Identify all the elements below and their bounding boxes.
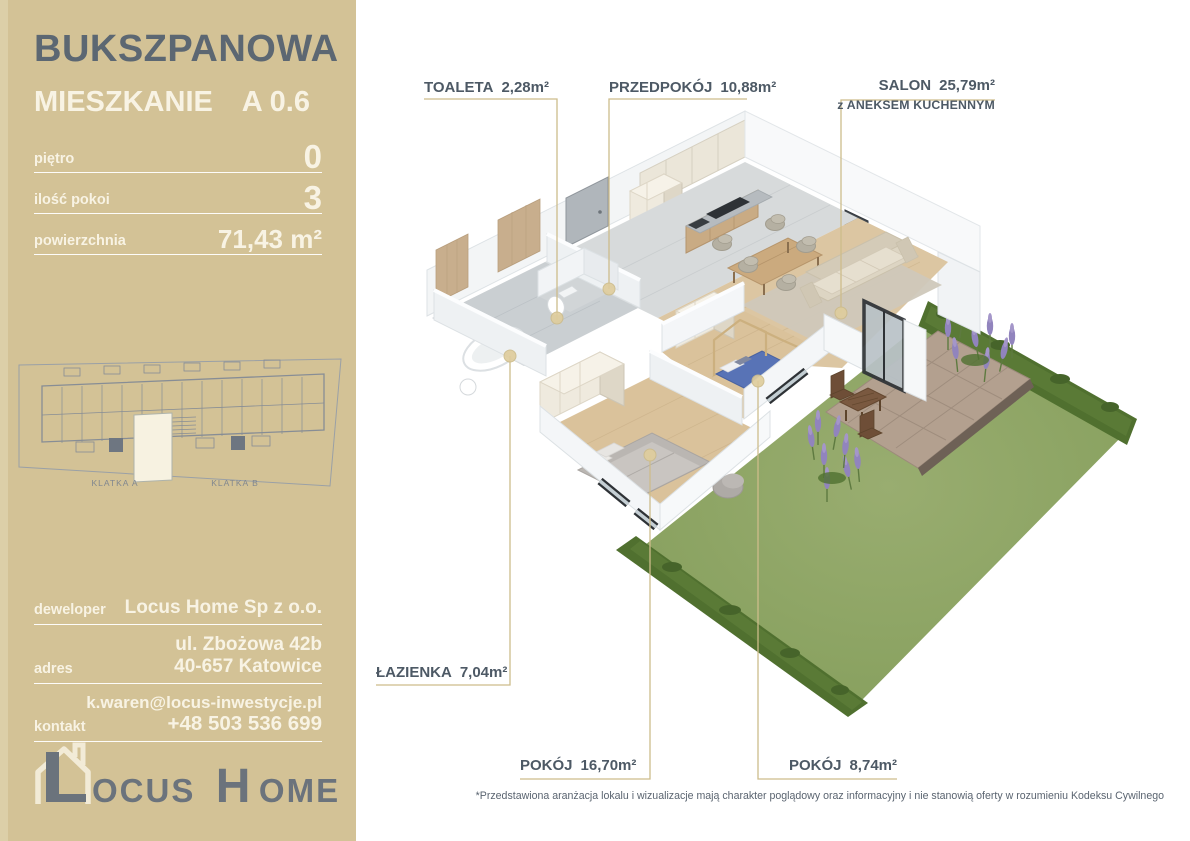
address-label: adres bbox=[34, 661, 73, 677]
address-street: ul. Zbożowa 42b bbox=[34, 634, 322, 656]
room-name: ŁAZIENKA bbox=[376, 664, 452, 681]
svg-text:OCUS H OME: OCUS H OME bbox=[92, 760, 340, 813]
building-site-map: KLATKA A KLATKA B bbox=[6, 338, 352, 490]
label-przedpokoj: PRZEDPOKÓJ10,88m² bbox=[609, 79, 776, 96]
stat-row-floor: piętro 0 bbox=[34, 132, 322, 173]
room-area: 16,70m² bbox=[581, 757, 637, 774]
unit-stats: piętro 0 ilość pokoi 3 powierzchnia 71,4… bbox=[34, 132, 322, 255]
floorplan-render bbox=[356, 0, 1190, 841]
contact-row: kontakt k.waren@locus-inwestycje.pl +48 … bbox=[34, 693, 322, 742]
logo-text-h: H bbox=[216, 760, 253, 813]
rooms-value: 3 bbox=[304, 181, 322, 214]
developer-label: deweloper bbox=[34, 602, 106, 618]
rooms-label: ilość pokoi bbox=[34, 192, 110, 208]
contact-block: deweloper Locus Home Sp z o.o. adres ul.… bbox=[34, 597, 322, 751]
label-toaleta: TOALETA2,28m² bbox=[424, 79, 549, 96]
room-area: 10,88m² bbox=[720, 79, 776, 96]
legal-disclaimer: *Przedstawiona aranżacja lokalu i wizual… bbox=[476, 790, 1164, 802]
stat-row-area: powierzchnia 71,43 m² bbox=[34, 214, 322, 255]
core-a bbox=[109, 438, 123, 452]
unit-title: MIESZKANIE A 0.6 bbox=[34, 86, 310, 119]
door-handle bbox=[598, 210, 602, 214]
room-area: 2,28m² bbox=[501, 79, 549, 96]
washbasin bbox=[460, 379, 476, 395]
contact-label: kontakt bbox=[34, 719, 86, 735]
area-label: powierzchnia bbox=[34, 233, 126, 249]
room-area: 25,79m² bbox=[939, 77, 995, 94]
unit-number: A 0.6 bbox=[242, 86, 310, 119]
label-salon: SALON25,79m² z ANEKSEM KUCHENNYM bbox=[780, 77, 995, 112]
logo-text-ocus: OCUS bbox=[92, 772, 195, 809]
room-name: SALON bbox=[879, 77, 932, 94]
contact-email: k.waren@locus-inwestycje.pl bbox=[34, 693, 322, 713]
room-name: TOALETA bbox=[424, 79, 493, 96]
sidebar: BUKSZPANOWA MIESZKANIE A 0.6 piętro 0 il… bbox=[0, 0, 356, 841]
room-name: PRZEDPOKÓJ bbox=[609, 79, 712, 96]
logo-letter-l bbox=[46, 752, 86, 802]
address-row: adres ul. Zbożowa 42b 40-657 Katowice bbox=[34, 634, 322, 684]
floor-label: piętro bbox=[34, 151, 74, 167]
stat-row-rooms: ilość pokoi 3 bbox=[34, 173, 322, 214]
logo-text-ome: OME bbox=[259, 772, 340, 809]
stairwell-b-label: KLATKA B bbox=[211, 478, 259, 488]
highlighted-unit bbox=[134, 413, 172, 482]
room-name: POKÓJ bbox=[520, 757, 573, 774]
developer-logo: OCUS H OME bbox=[30, 740, 340, 820]
project-title: BUKSZPANOWA bbox=[34, 28, 339, 71]
room-area: 7,04m² bbox=[460, 664, 508, 681]
area-value: 71,43 m² bbox=[218, 226, 322, 252]
label-lazienka: ŁAZIENKA7,04m² bbox=[376, 664, 507, 681]
room-name: POKÓJ bbox=[789, 757, 842, 774]
parcel-outline bbox=[19, 359, 341, 486]
building-footprint bbox=[42, 360, 324, 452]
room-subtitle: z ANEKSEM KUCHENNYM bbox=[780, 98, 995, 112]
unit-label: MIESZKANIE bbox=[34, 86, 213, 119]
room-area: 8,74m² bbox=[849, 757, 897, 774]
stairs-hatch bbox=[172, 417, 196, 434]
address-city: 40-657 Katowice bbox=[34, 656, 322, 678]
developer-row: deweloper Locus Home Sp z o.o. bbox=[34, 597, 322, 625]
stairwell-a-label: KLATKA A bbox=[91, 478, 138, 488]
label-pokoj-small: POKÓJ8,74m² bbox=[758, 757, 897, 774]
core-b bbox=[231, 436, 245, 450]
floor-value: 0 bbox=[304, 140, 322, 173]
label-pokoj-large: POKÓJ16,70m² bbox=[520, 757, 636, 774]
